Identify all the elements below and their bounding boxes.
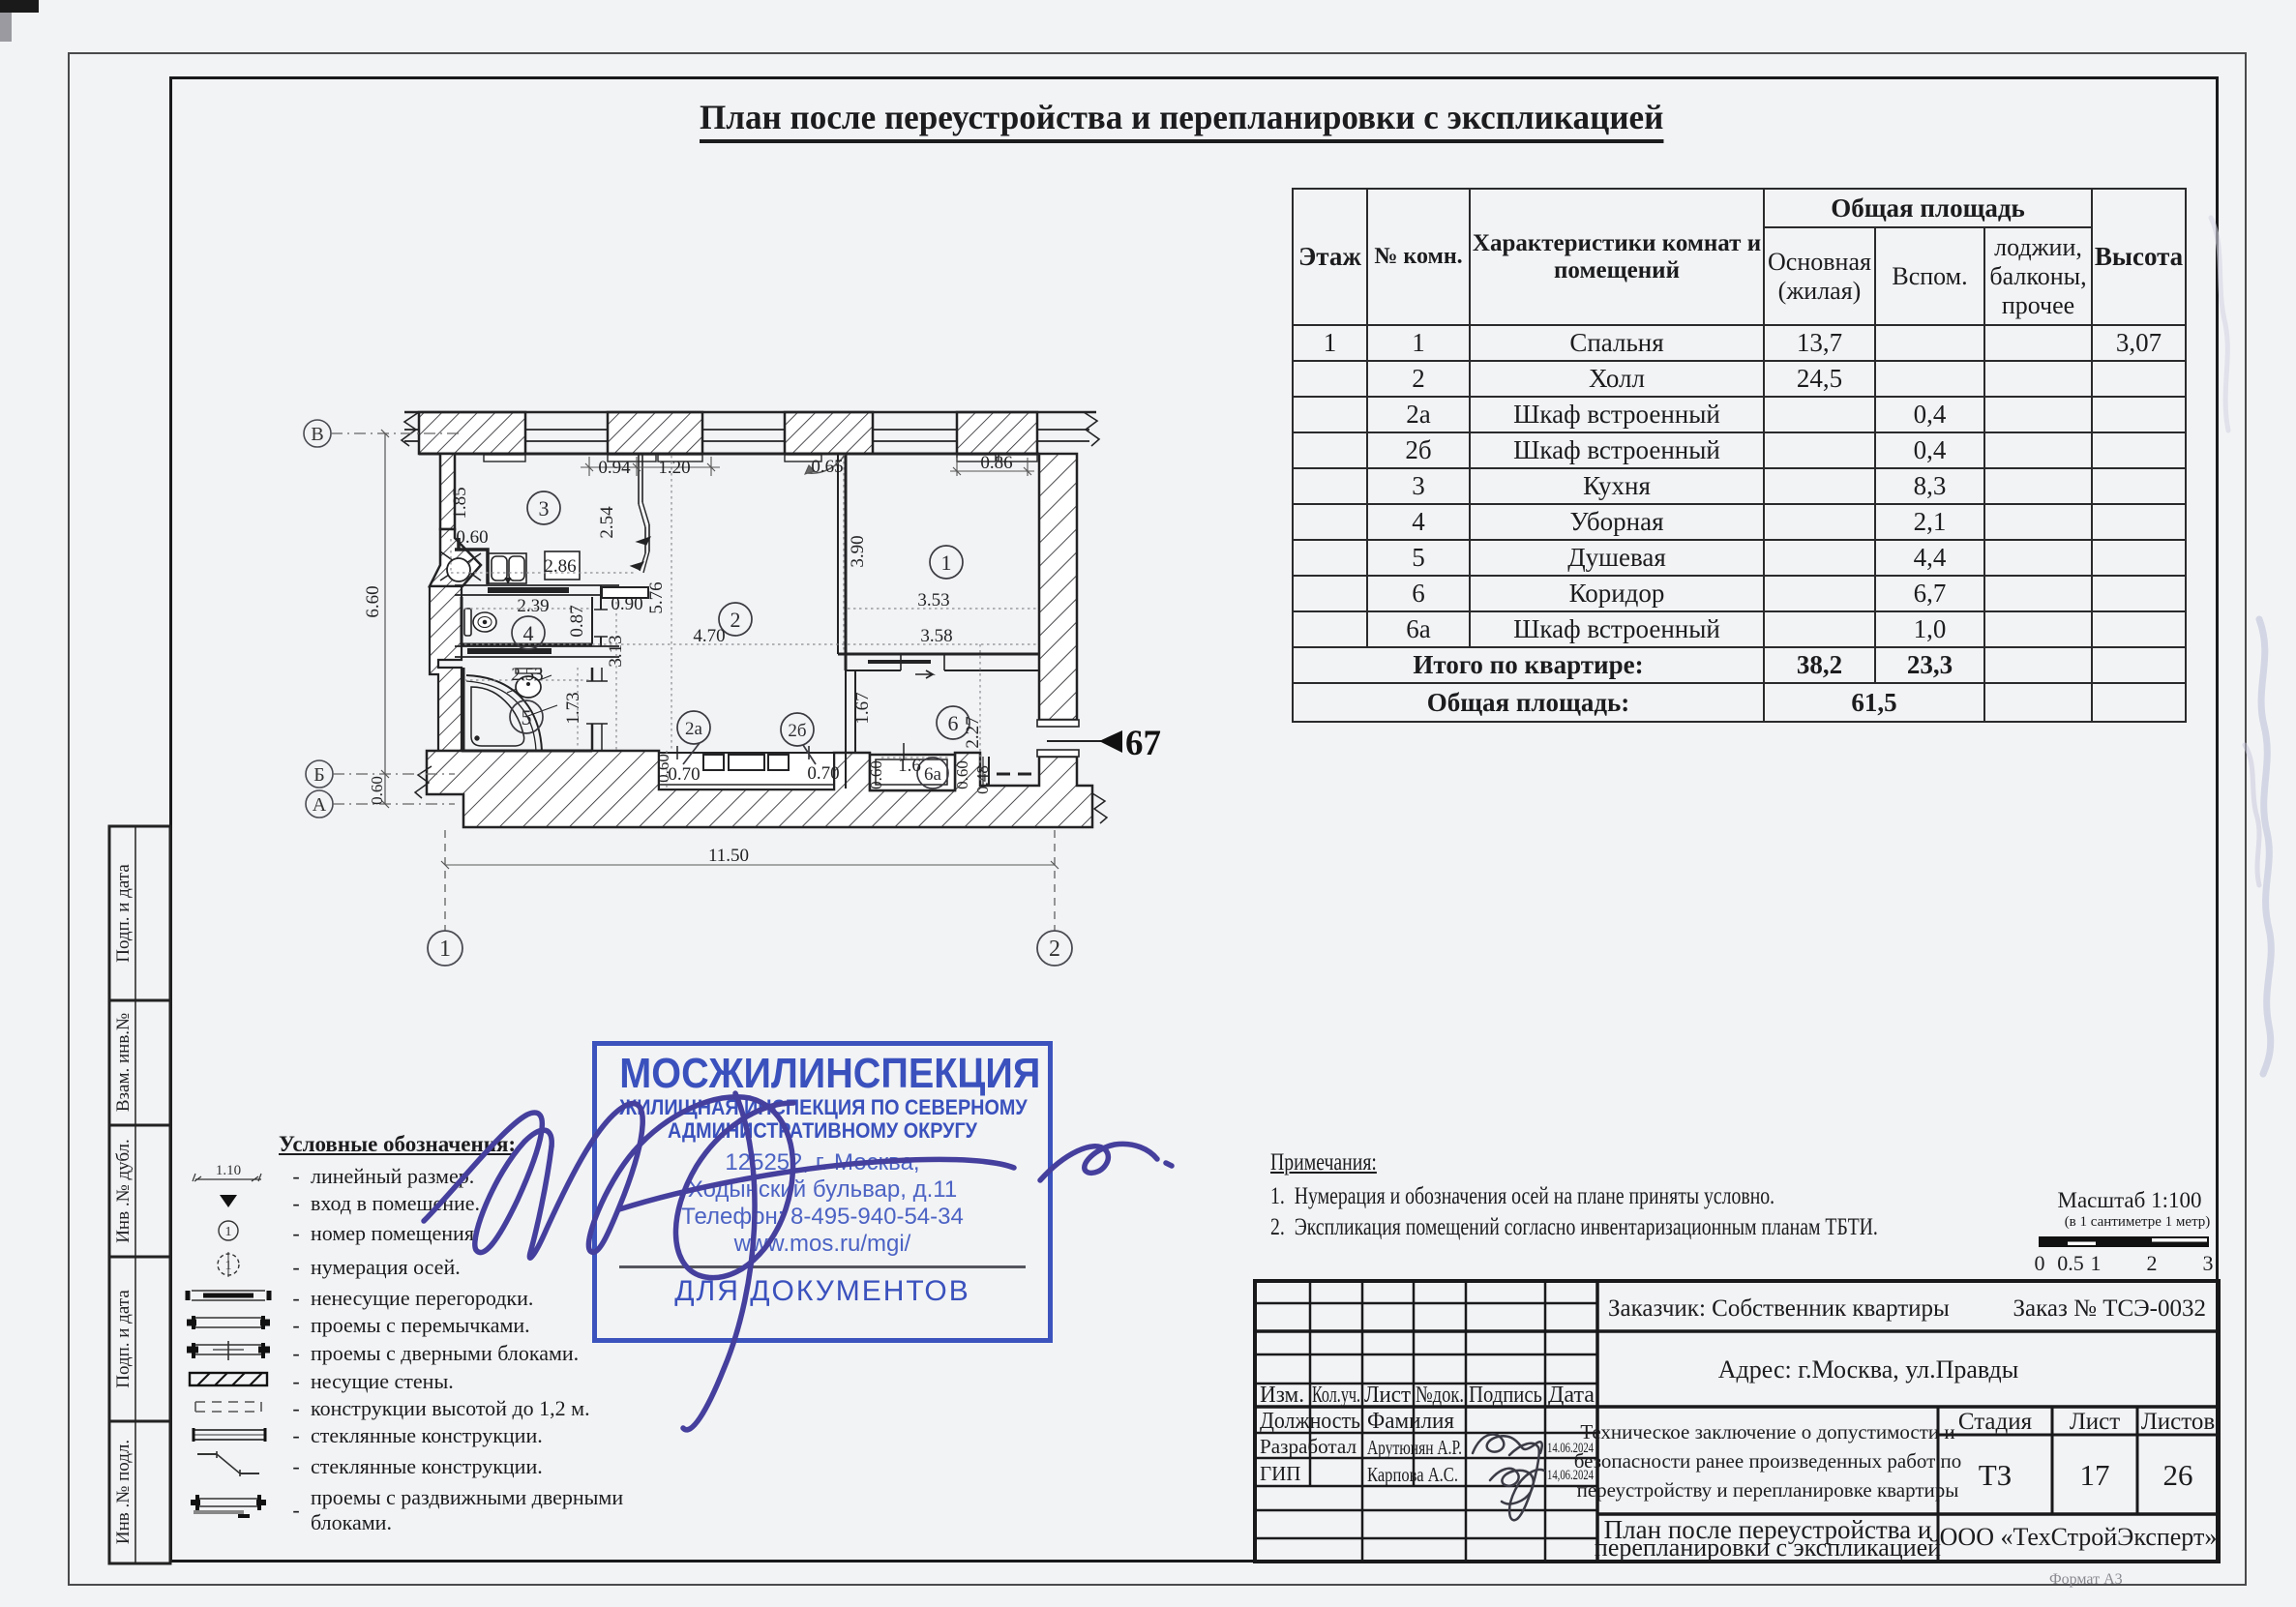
svg-text:0.94: 0.94 bbox=[598, 458, 631, 478]
svg-text:перепланировки с экспликацией: перепланировки с экспликацией bbox=[1595, 1533, 1941, 1562]
svg-text:переустройству и перепланировк: переустройству и перепланировке квартиры bbox=[1577, 1478, 1959, 1502]
svg-text:Должность: Должность bbox=[1260, 1409, 1360, 1434]
svg-text:Дата: Дата bbox=[1548, 1383, 1595, 1408]
svg-text:№док.: №док. bbox=[1416, 1383, 1464, 1408]
svg-text:2: 2 bbox=[1049, 937, 1060, 962]
svg-text:1: 1 bbox=[439, 937, 451, 962]
svg-text:0.65: 0.65 bbox=[811, 457, 843, 477]
svg-text:А: А bbox=[313, 794, 327, 816]
svg-text:2а: 2а bbox=[685, 719, 703, 739]
svg-text:3.53: 3.53 bbox=[917, 590, 949, 610]
svg-text:Подп. и дата: Подп. и дата bbox=[113, 1290, 134, 1388]
svg-text:1.6: 1.6 bbox=[898, 756, 921, 776]
svg-text:Подп. и дата: Подп. и дата bbox=[113, 864, 134, 963]
svg-text:Арутюнян А.Р.: Арутюнян А.Р. bbox=[1367, 1436, 1462, 1459]
svg-text:5: 5 bbox=[522, 705, 532, 729]
svg-text:3.90: 3.90 bbox=[848, 535, 868, 567]
svg-text:Листов: Листов bbox=[2141, 1409, 2215, 1435]
svg-text:0.70: 0.70 bbox=[668, 764, 700, 785]
svg-text:Инв .№ подл.: Инв .№ подл. bbox=[113, 1440, 134, 1544]
svg-text:0.48: 0.48 bbox=[973, 765, 992, 794]
svg-text:2.54: 2.54 bbox=[597, 506, 617, 539]
svg-text:Адрес: г.Москва, ул.Правды: Адрес: г.Москва, ул.Правды bbox=[1718, 1355, 2018, 1384]
svg-text:67: 67 bbox=[1125, 724, 1161, 763]
svg-text:1.73: 1.73 bbox=[563, 692, 583, 724]
svg-text:1.10: 1.10 bbox=[216, 1164, 241, 1178]
svg-text:0.60: 0.60 bbox=[867, 760, 885, 789]
svg-text:Разработал: Разработал bbox=[1260, 1435, 1357, 1458]
svg-text:0.70: 0.70 bbox=[807, 763, 839, 784]
svg-text:Лист: Лист bbox=[1364, 1383, 1411, 1408]
svg-text:Инв .№ дубл.: Инв .№ дубл. bbox=[113, 1139, 134, 1243]
svg-text:Заказ № ТСЭ-0032: Заказ № ТСЭ-0032 bbox=[2013, 1295, 2207, 1322]
svg-text:ТЗ: ТЗ bbox=[1979, 1458, 2012, 1492]
svg-text:0.60: 0.60 bbox=[953, 760, 971, 789]
svg-text:2б: 2б bbox=[788, 721, 806, 741]
svg-text:3.13: 3.13 bbox=[606, 635, 626, 667]
svg-text:6а: 6а bbox=[924, 764, 942, 785]
svg-text:1.67: 1.67 bbox=[852, 692, 873, 724]
svg-text:Техническое заключение о допус: Техническое заключение о допустимости и bbox=[1580, 1420, 1954, 1443]
svg-text:0.60: 0.60 bbox=[368, 776, 386, 805]
svg-text:Карпова А.С.: Карпова А.С. bbox=[1367, 1463, 1458, 1486]
svg-text:Изм.: Изм. bbox=[1260, 1383, 1304, 1408]
svg-text:0.5: 0.5 bbox=[2057, 1251, 2084, 1275]
svg-text:6: 6 bbox=[948, 711, 959, 735]
svg-text:1: 1 bbox=[941, 551, 952, 575]
svg-text:0.87: 0.87 bbox=[567, 605, 587, 637]
svg-text:4.70: 4.70 bbox=[693, 626, 725, 646]
svg-text:В: В bbox=[311, 424, 323, 445]
svg-text:безопасности ранее произведенн: безопасности ранее произведенных работ п… bbox=[1574, 1449, 1962, 1473]
svg-text:Подпись: Подпись bbox=[1469, 1383, 1542, 1408]
svg-text:Стадия: Стадия bbox=[1958, 1409, 2033, 1435]
svg-text:1: 1 bbox=[2091, 1251, 2102, 1275]
svg-text:ГИП: ГИП bbox=[1260, 1462, 1300, 1485]
svg-text:26: 26 bbox=[2163, 1458, 2193, 1492]
svg-text:Б: Б bbox=[313, 764, 324, 786]
svg-text:11.50: 11.50 bbox=[708, 846, 749, 866]
svg-text:2.39: 2.39 bbox=[517, 596, 549, 616]
svg-text:Взам. инв.№: Взам. инв.№ bbox=[113, 1013, 134, 1112]
svg-text:3: 3 bbox=[539, 496, 550, 521]
svg-text:2.53: 2.53 bbox=[511, 665, 543, 685]
svg-text:1.20: 1.20 bbox=[658, 458, 690, 478]
svg-text:2: 2 bbox=[2147, 1251, 2158, 1275]
svg-text:0: 0 bbox=[2035, 1251, 2045, 1275]
svg-text:Заказчик: Собственник квартиры: Заказчик: Собственник квартиры bbox=[1608, 1295, 1950, 1322]
svg-text:17: 17 bbox=[2080, 1458, 2110, 1492]
svg-text:6.60: 6.60 bbox=[363, 585, 383, 617]
svg-text:Фамилия: Фамилия bbox=[1367, 1409, 1454, 1434]
svg-text:1.85: 1.85 bbox=[450, 487, 470, 519]
svg-text:5.76: 5.76 bbox=[646, 581, 667, 613]
svg-text:Кол.уч.: Кол.уч. bbox=[1312, 1383, 1360, 1408]
svg-text:Лист: Лист bbox=[2070, 1409, 2120, 1435]
svg-text:2.27: 2.27 bbox=[963, 716, 983, 748]
svg-text:3.58: 3.58 bbox=[920, 626, 952, 646]
svg-text:0.90: 0.90 bbox=[611, 594, 642, 614]
svg-text:1: 1 bbox=[225, 1225, 232, 1239]
svg-text:2: 2 bbox=[731, 608, 741, 632]
svg-text:4: 4 bbox=[523, 621, 534, 645]
svg-text:0.60: 0.60 bbox=[456, 527, 488, 548]
svg-text:3: 3 bbox=[2203, 1251, 2214, 1275]
svg-text:0.60: 0.60 bbox=[654, 754, 672, 783]
svg-text:2.86: 2.86 bbox=[544, 556, 576, 577]
svg-text:0.86: 0.86 bbox=[980, 453, 1012, 473]
svg-text:ООО «ТехСтройЭксперт»: ООО «ТехСтройЭксперт» bbox=[1940, 1523, 2218, 1551]
